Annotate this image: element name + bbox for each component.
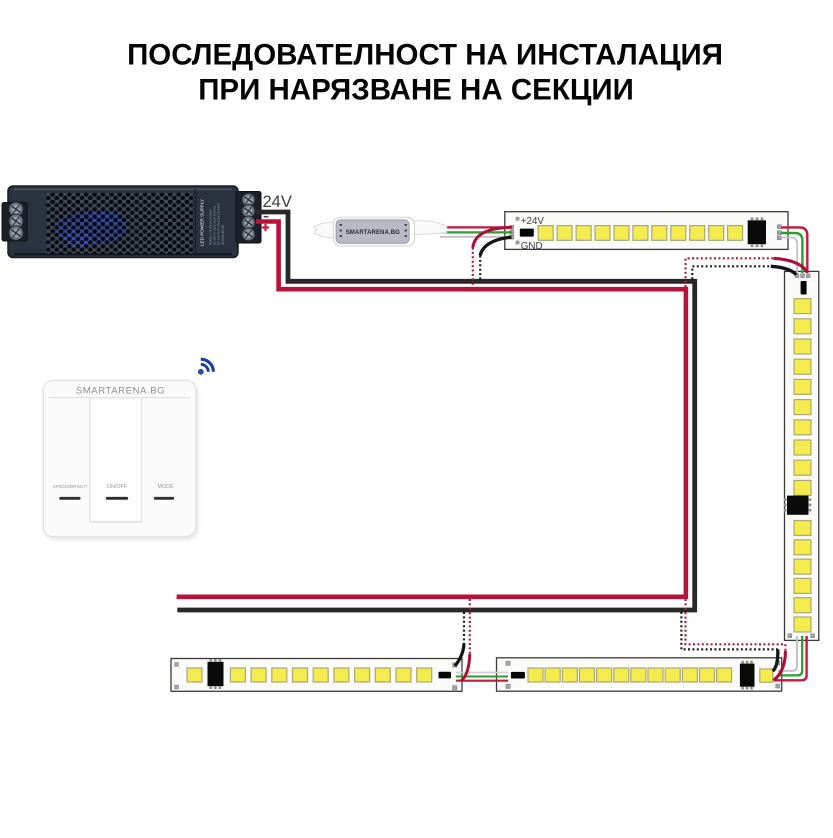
svg-text:ПОСЛЕДОВАТЕЛНОСТ НА ИНСТАЛАЦИЯ: ПОСЛЕДОВАТЕЛНОСТ НА ИНСТАЛАЦИЯ [127,39,723,72]
svg-text:GND: GND [521,241,543,252]
svg-text:MODE: MODE [158,484,175,490]
svg-text:ON/OFF: ON/OFF [107,484,128,490]
svg-text:SMARTARENA.BG: SMARTARENA.BG [346,230,400,236]
svg-text:LED POWER SUPPLY: LED POWER SUPPLY [200,198,206,246]
svg-text:SPEED/BRIGHT: SPEED/BRIGHT [53,484,88,489]
svg-text:24V: 24V [263,193,292,211]
svg-text:|||| ||||||||| |||||| |||||: |||| ||||||||| |||||| ||||| [221,225,225,245]
svg-text:SMARTARENA.BG: SMARTARENA.BG [76,386,165,397]
svg-text:ПРИ НАРЯЗВАНЕ НА СЕКЦИИ: ПРИ НАРЯЗВАНЕ НА СЕКЦИИ [198,74,634,107]
